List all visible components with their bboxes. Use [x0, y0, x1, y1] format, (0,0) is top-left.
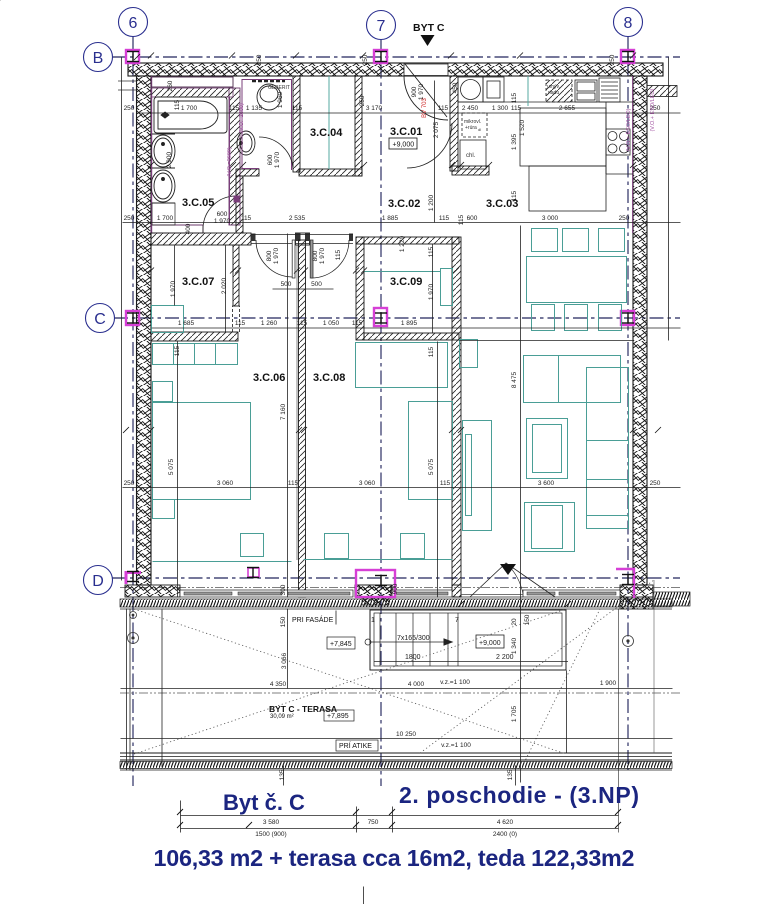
- svg-text:800: 800: [312, 250, 319, 261]
- svg-text:115: 115: [511, 105, 522, 112]
- svg-text:250: 250: [124, 215, 135, 222]
- svg-text:1 970: 1 970: [273, 247, 280, 264]
- svg-text:115: 115: [174, 345, 181, 356]
- svg-text:115: 115: [439, 215, 450, 222]
- svg-text:135: 135: [279, 769, 286, 780]
- svg-text:3 170: 3 170: [366, 105, 383, 112]
- svg-text:250: 250: [359, 95, 366, 106]
- svg-text:3.C.01: 3.C.01: [390, 126, 422, 138]
- svg-text:5 075: 5 075: [168, 458, 175, 475]
- svg-text:3.C.04: 3.C.04: [310, 127, 343, 139]
- svg-text:115: 115: [440, 480, 451, 487]
- svg-text:B: B: [93, 50, 104, 67]
- svg-text:1 705: 1 705: [511, 705, 518, 722]
- svg-text:300: 300: [280, 584, 287, 595]
- svg-text:115: 115: [229, 105, 240, 112]
- svg-text:450: 450: [452, 82, 459, 93]
- svg-text:1 900: 1 900: [600, 680, 617, 687]
- svg-text:106,33 m2 + terasa cca 16m2, t: 106,33 m2 + terasa cca 16m2, teda 122,33…: [154, 845, 635, 871]
- svg-text:115: 115: [511, 92, 518, 103]
- svg-text:7: 7: [455, 617, 459, 624]
- svg-text:600: 600: [217, 211, 228, 218]
- svg-text:115: 115: [458, 214, 465, 225]
- svg-text:2 075: 2 075: [433, 121, 440, 138]
- svg-text:dl: dl: [478, 127, 481, 132]
- svg-text:135: 135: [507, 769, 514, 780]
- svg-text:Byt č. C: Byt č. C: [223, 790, 305, 815]
- svg-text:1 135: 1 135: [246, 105, 263, 112]
- svg-text:v.z.=1 100: v.z.=1 100: [440, 679, 470, 686]
- svg-text:7x165/300: 7x165/300: [397, 635, 430, 642]
- svg-text:1500 (900): 1500 (900): [255, 831, 286, 838]
- svg-text:250: 250: [609, 54, 616, 65]
- svg-text:900: 900: [392, 583, 399, 594]
- svg-text:1 970: 1 970: [319, 247, 326, 264]
- svg-text:250: 250: [619, 215, 630, 222]
- svg-text:1 970: 1 970: [214, 218, 231, 225]
- svg-text:PRÍ ATIKE: PRÍ ATIKE: [339, 741, 372, 750]
- svg-text:30,09 m²: 30,09 m²: [270, 714, 294, 720]
- svg-text:1 700: 1 700: [181, 105, 198, 112]
- svg-text:150: 150: [524, 614, 531, 625]
- svg-text:riadu: riadu: [548, 90, 559, 96]
- svg-text:1 970: 1 970: [170, 280, 177, 297]
- svg-text:2 450: 2 450: [462, 105, 479, 112]
- svg-text:+7,895: +7,895: [327, 713, 349, 720]
- svg-text:1 885: 1 885: [382, 215, 399, 222]
- svg-text:3 060: 3 060: [359, 480, 376, 487]
- svg-text:250: 250: [124, 480, 135, 487]
- svg-text:GEBERIT: GEBERIT: [268, 85, 290, 91]
- svg-text:20: 20: [511, 618, 518, 626]
- svg-text:3 600: 3 600: [538, 480, 555, 487]
- svg-text:3.C.07: 3.C.07: [182, 276, 214, 288]
- svg-text:115: 115: [174, 99, 181, 110]
- svg-text:(V.O.=2600): (V.O.=2600): [239, 103, 245, 133]
- svg-text:750: 750: [368, 819, 379, 826]
- svg-text:1 970: 1 970: [428, 283, 435, 300]
- svg-text:250: 250: [650, 480, 661, 487]
- svg-text:1 685: 1 685: [178, 320, 195, 327]
- svg-text:BYT C: BYT C: [413, 22, 445, 34]
- svg-text:v.z.=1 100: v.z.=1 100: [441, 742, 471, 749]
- svg-text:260: 260: [167, 80, 174, 91]
- svg-text:3.C.02: 3.C.02: [388, 198, 420, 210]
- svg-text:1 395: 1 395: [511, 133, 518, 150]
- svg-text:2 020: 2 020: [221, 277, 228, 294]
- svg-text:D: D: [92, 573, 104, 590]
- svg-text:8: 8: [624, 15, 633, 32]
- svg-text:4 620: 4 620: [497, 819, 514, 826]
- svg-text:(V.O.=2600): (V.O.=2600): [227, 147, 233, 177]
- svg-text:5 075: 5 075: [428, 458, 435, 475]
- svg-text:1 700: 1 700: [157, 215, 174, 222]
- svg-text:3.C.05: 3.C.05: [182, 197, 214, 209]
- svg-text:150: 150: [280, 616, 287, 627]
- svg-text:7: 7: [377, 18, 386, 35]
- svg-text:+9,000: +9,000: [393, 142, 415, 149]
- svg-text:1 200: 1 200: [428, 194, 435, 211]
- svg-text:2 535: 2 535: [289, 215, 306, 222]
- svg-text:1800: 1800: [405, 654, 421, 661]
- svg-text:3.C.06: 3.C.06: [253, 372, 285, 384]
- svg-text:1 220: 1 220: [399, 235, 406, 252]
- svg-text:3.C.03: 3.C.03: [486, 198, 518, 210]
- svg-text:4 000: 4 000: [408, 681, 425, 688]
- svg-text:1 300: 1 300: [492, 105, 509, 112]
- svg-text:500: 500: [311, 281, 322, 288]
- svg-text:115: 115: [428, 346, 435, 357]
- svg-text:6: 6: [129, 15, 138, 32]
- svg-text:PRI FASÁDE: PRI FASÁDE: [292, 615, 334, 624]
- svg-text:250: 250: [362, 54, 369, 65]
- svg-text:500: 500: [281, 281, 292, 288]
- svg-text:2 900: 2 900: [166, 151, 173, 168]
- svg-text:400: 400: [185, 223, 192, 234]
- svg-text:BV 703: BV 703: [422, 97, 428, 117]
- svg-text:250: 250: [256, 54, 263, 65]
- svg-text:1 895: 1 895: [401, 320, 418, 327]
- svg-text:600: 600: [467, 215, 478, 222]
- svg-text:3.C.08: 3.C.08: [313, 372, 345, 384]
- svg-text:1 340: 1 340: [511, 637, 518, 654]
- svg-text:C: C: [94, 311, 106, 328]
- svg-text:1 960: 1 960: [277, 91, 284, 108]
- svg-text:900: 900: [411, 86, 418, 97]
- svg-text:3 066: 3 066: [281, 652, 288, 669]
- svg-text:3 000: 3 000: [542, 215, 559, 222]
- svg-text:2. poschodie - (3.NP): 2. poschodie - (3.NP): [399, 782, 639, 808]
- svg-text:115: 115: [352, 320, 363, 327]
- svg-text:600: 600: [267, 154, 274, 165]
- svg-text:10 250: 10 250: [396, 731, 416, 738]
- svg-text:115: 115: [241, 215, 252, 222]
- svg-text:115: 115: [297, 320, 308, 327]
- svg-text:115: 115: [288, 480, 299, 487]
- svg-text:1 970: 1 970: [274, 151, 281, 168]
- svg-text:115: 115: [428, 246, 435, 257]
- svg-text:1 970: 1 970: [418, 83, 425, 100]
- svg-text:1 520: 1 520: [519, 119, 526, 136]
- svg-text:+9,000: +9,000: [479, 640, 501, 647]
- svg-text:chl.: chl.: [466, 153, 476, 159]
- svg-text:(V.O.+ ESO/LEO): (V.O.+ ESO/LEO): [650, 88, 656, 131]
- svg-text:115: 115: [235, 320, 246, 327]
- svg-text:115: 115: [335, 249, 342, 260]
- svg-text:115: 115: [292, 105, 303, 112]
- svg-text:1 260: 1 260: [261, 320, 278, 327]
- svg-text:3 060: 3 060: [217, 480, 234, 487]
- svg-text:4 350: 4 350: [270, 681, 287, 688]
- svg-text:3 580: 3 580: [263, 819, 280, 826]
- svg-text:250: 250: [124, 105, 135, 112]
- svg-text:800: 800: [266, 250, 273, 261]
- svg-text:3.C.09: 3.C.09: [390, 276, 422, 288]
- svg-text:1 050: 1 050: [323, 320, 340, 327]
- svg-text:2400 (0): 2400 (0): [493, 831, 517, 838]
- svg-text:115: 115: [438, 105, 449, 112]
- svg-text:(V.O.= ESO/LEO): (V.O.= ESO/LEO): [626, 108, 632, 151]
- svg-text:7 160: 7 160: [280, 403, 287, 420]
- svg-text:+7,845: +7,845: [330, 641, 352, 648]
- svg-text:1: 1: [371, 617, 375, 624]
- svg-text:+rúra: +rúra: [465, 125, 477, 131]
- svg-text:8 475: 8 475: [511, 371, 518, 388]
- svg-text:2 655: 2 655: [559, 105, 576, 112]
